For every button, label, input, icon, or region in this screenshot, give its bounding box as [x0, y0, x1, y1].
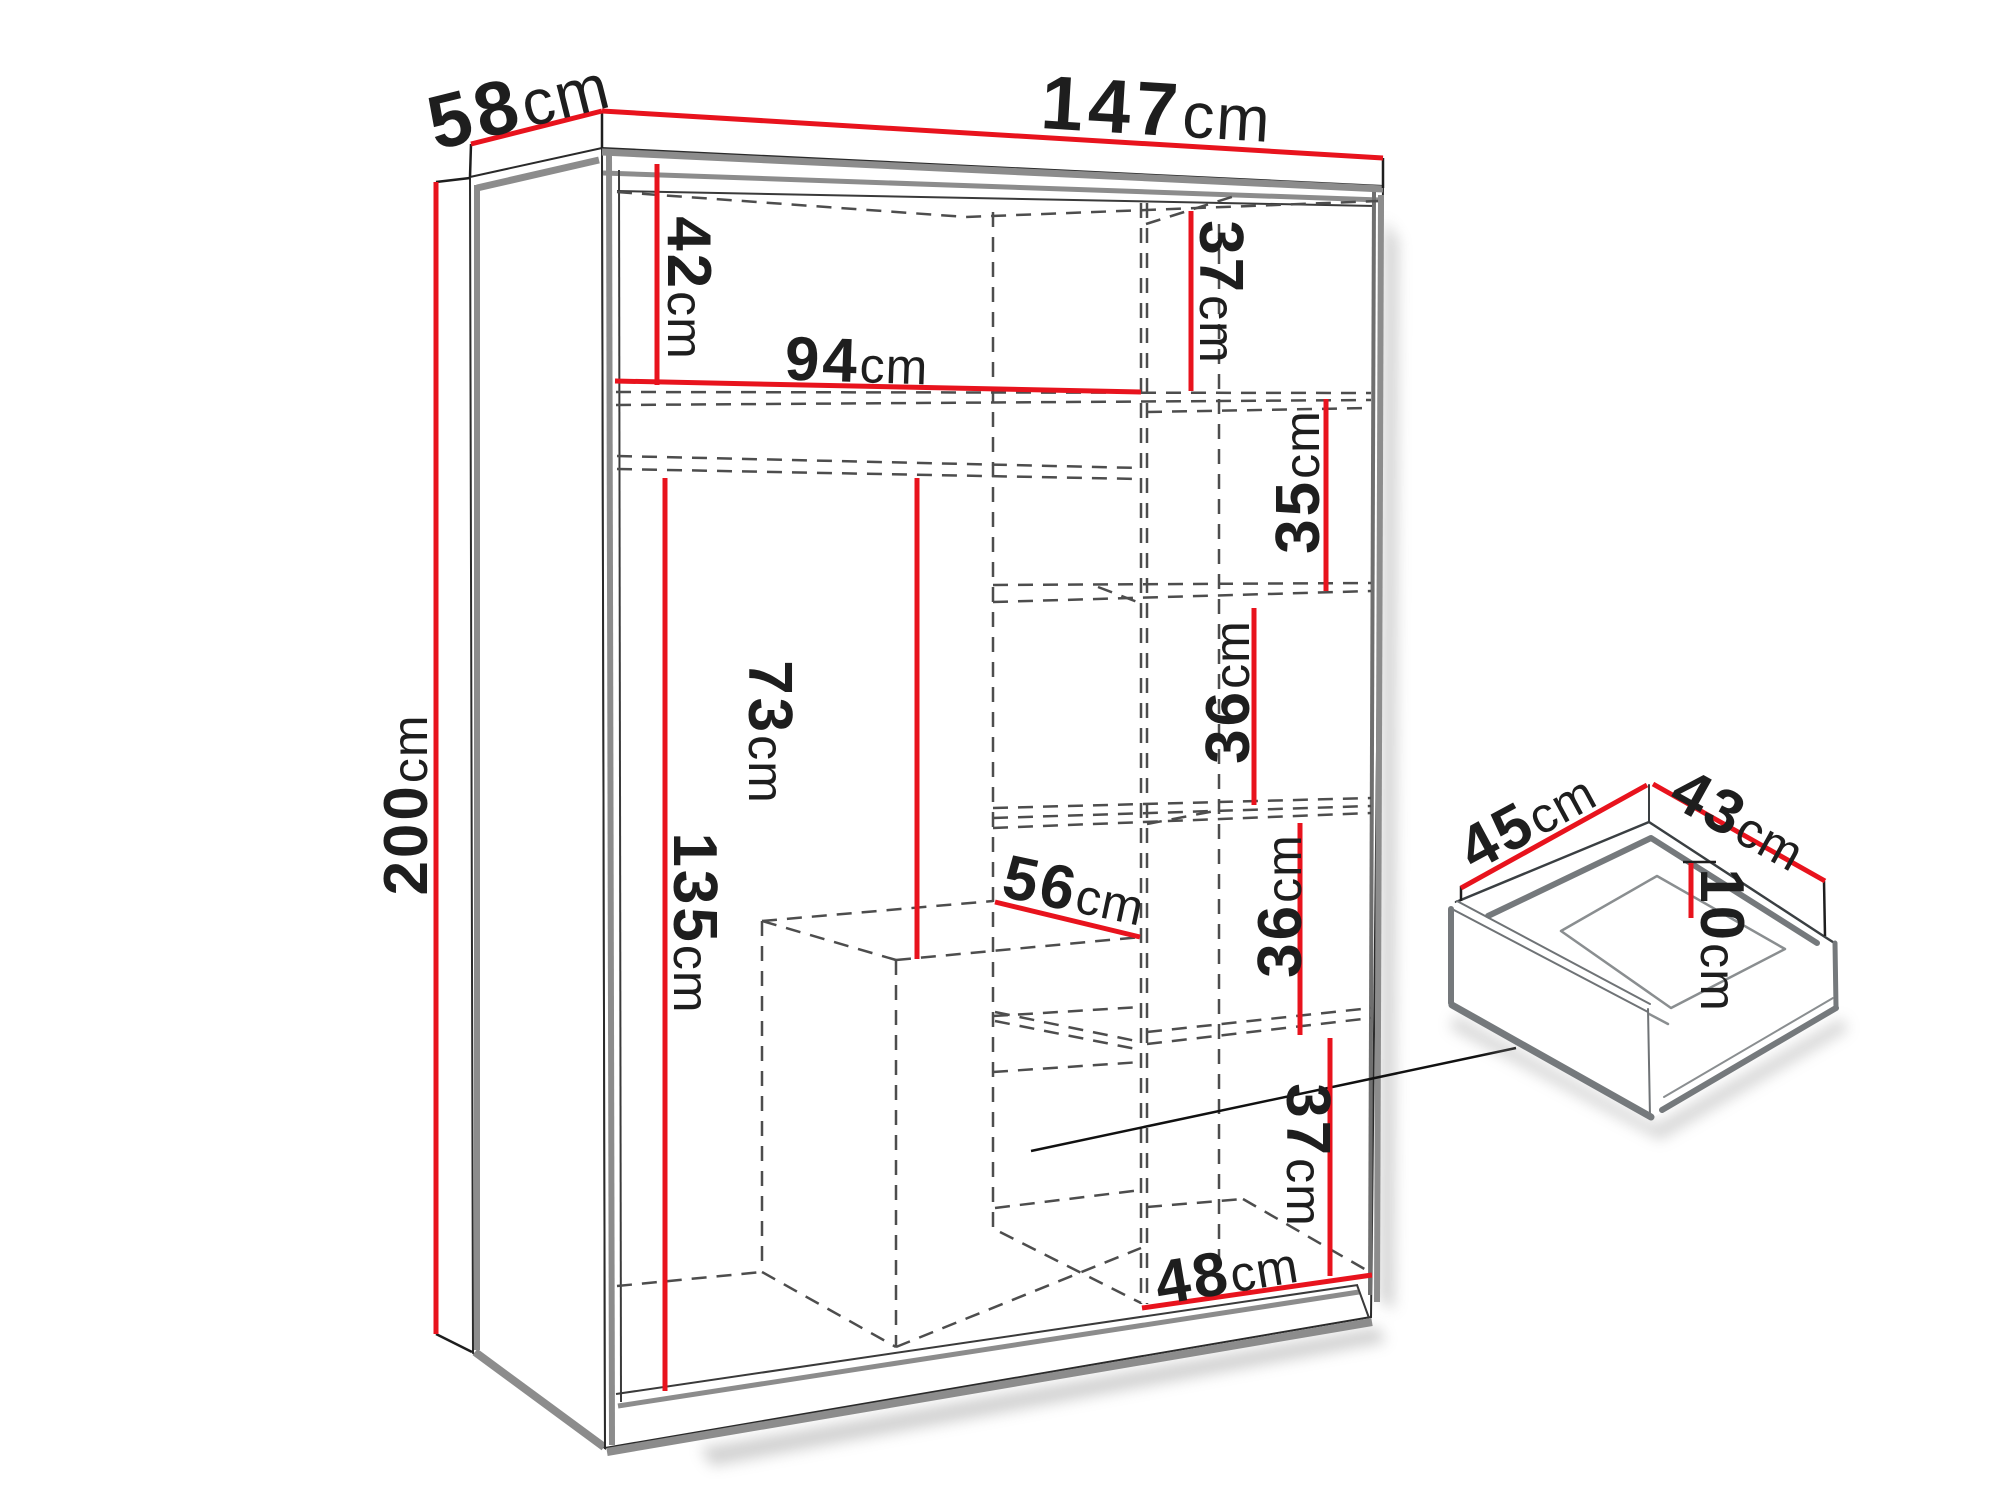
svg-text:37cm: 37cm [1273, 1083, 1342, 1227]
svg-text:73cm: 73cm [735, 660, 804, 804]
svg-text:135cm: 135cm [660, 832, 729, 1013]
svg-text:10cm: 10cm [1687, 868, 1756, 1012]
svg-text:37cm: 37cm [1186, 220, 1255, 364]
svg-text:36cm: 36cm [1194, 620, 1263, 764]
svg-text:36cm: 36cm [1246, 834, 1315, 978]
svg-text:42cm: 42cm [654, 216, 723, 360]
svg-text:35cm: 35cm [1264, 410, 1333, 554]
svg-text:200cm: 200cm [372, 714, 441, 895]
